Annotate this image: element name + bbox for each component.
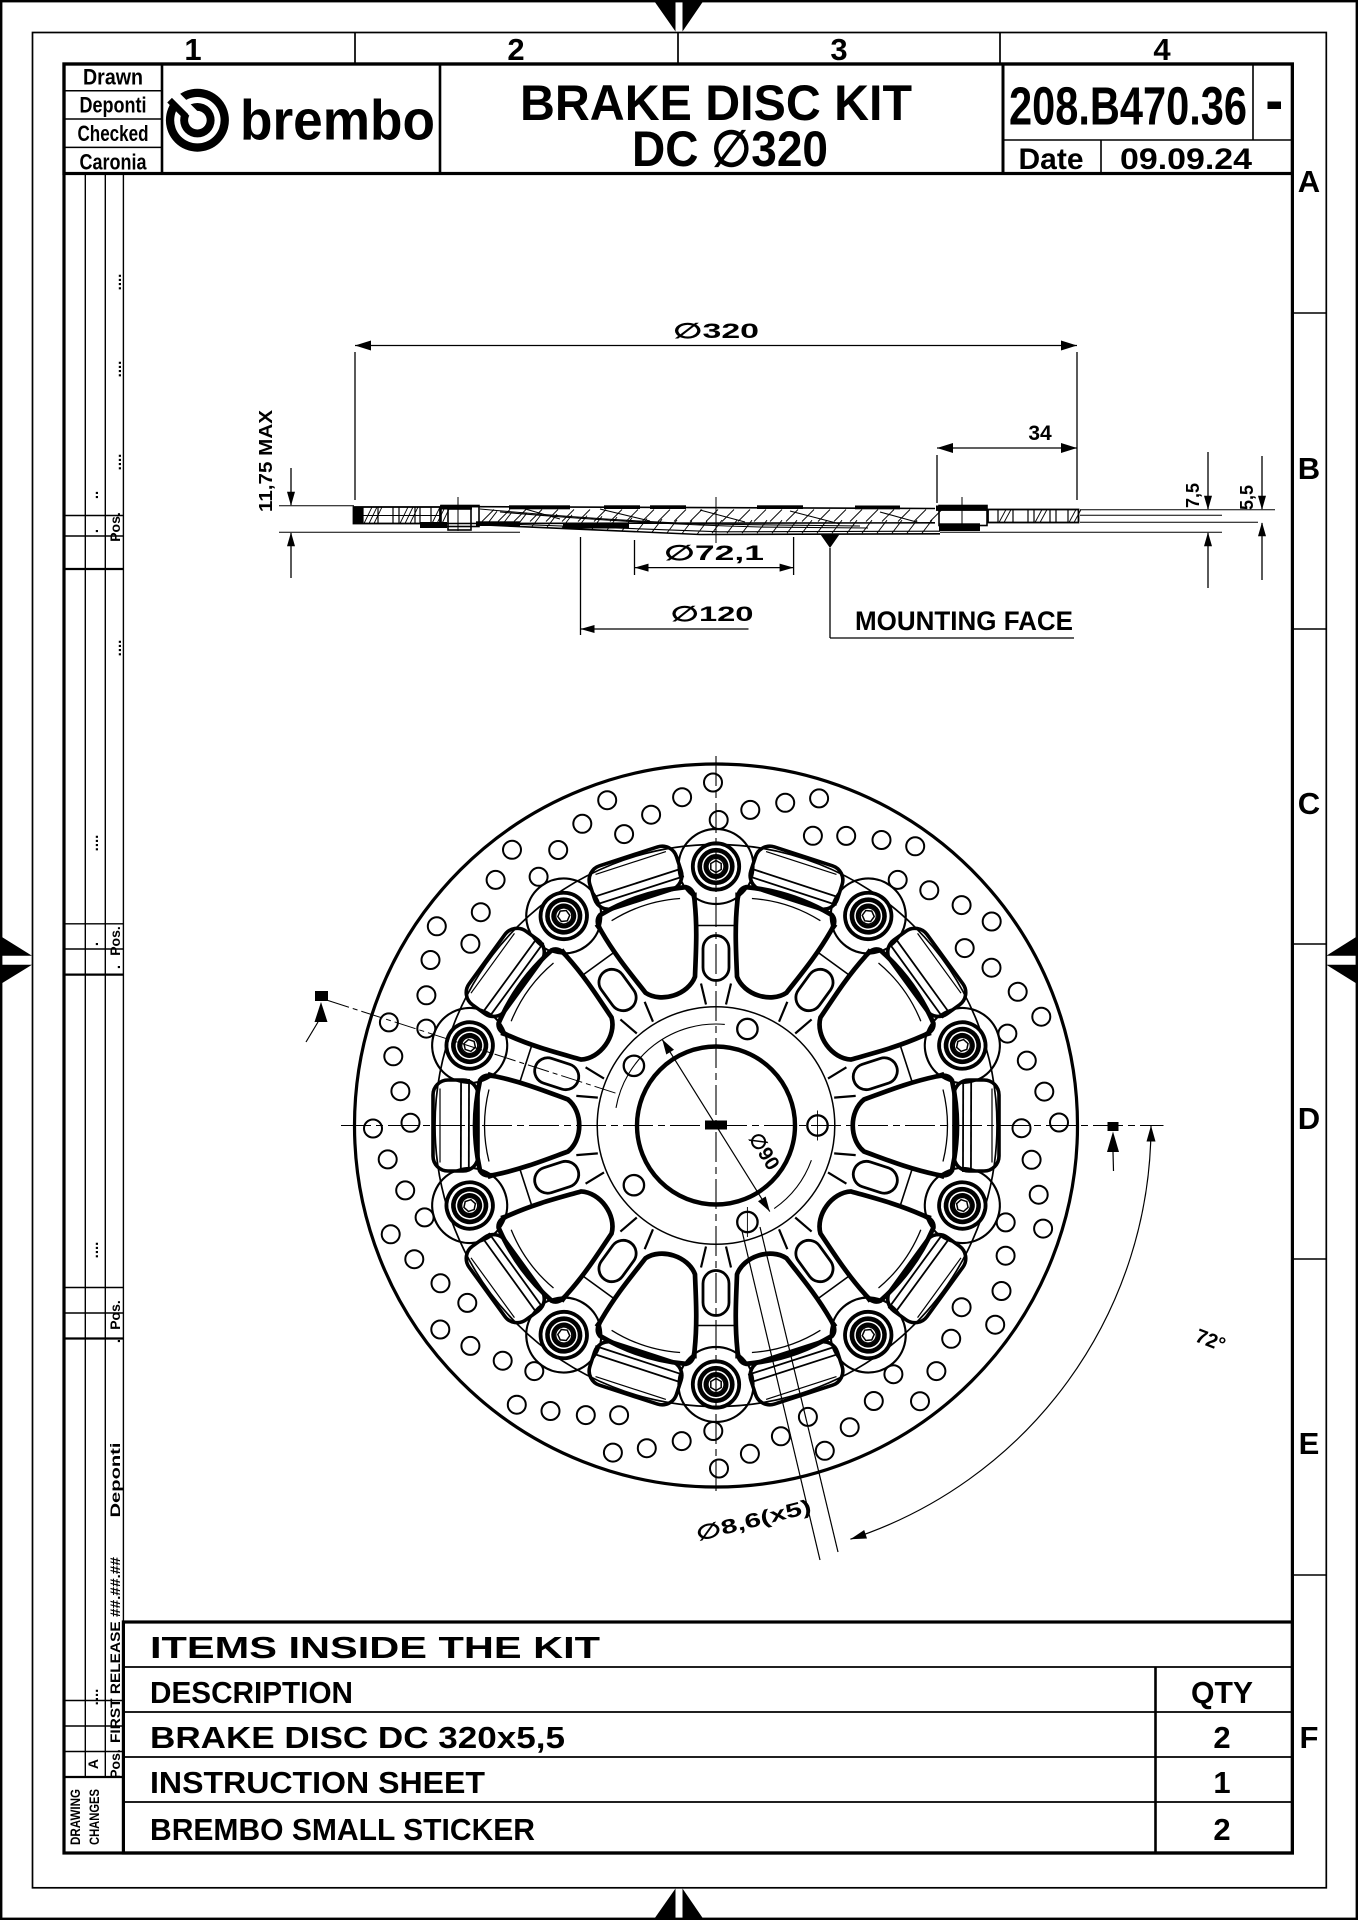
svg-text:2: 2 <box>1213 1812 1230 1847</box>
svg-text:09.09.24: 09.09.24 <box>1120 143 1252 176</box>
svg-text:A: A <box>1298 164 1320 199</box>
svg-text:72°: 72° <box>1192 1325 1228 1356</box>
svg-text:BRAKE DISC DC 320x5,5: BRAKE DISC DC 320x5,5 <box>150 1720 565 1755</box>
svg-text:....: .... <box>108 454 125 471</box>
svg-text:....: .... <box>108 274 125 291</box>
svg-text:CHANGES: CHANGES <box>87 1789 102 1845</box>
svg-text:B: B <box>1298 451 1320 486</box>
svg-text:E: E <box>1299 1426 1320 1461</box>
svg-text:∅120: ∅120 <box>671 603 754 626</box>
svg-text:Pos.: Pos. <box>107 926 123 956</box>
svg-text:11,75 MAX: 11,75 MAX <box>256 410 276 512</box>
svg-text:DRAWING: DRAWING <box>68 1789 83 1845</box>
svg-text:MOUNTING FACE: MOUNTING FACE <box>855 606 1073 636</box>
svg-text:.: . <box>85 529 102 533</box>
svg-text:Drawn: Drawn <box>83 65 143 90</box>
svg-text:QTY: QTY <box>1191 1675 1253 1710</box>
svg-text:∅8,6(x5): ∅8,6(x5) <box>694 1496 814 1546</box>
svg-text:Date: Date <box>1019 143 1084 176</box>
svg-text:2: 2 <box>1213 1720 1230 1755</box>
svg-text:Pos.: Pos. <box>107 512 123 542</box>
svg-text:34: 34 <box>1028 422 1052 445</box>
svg-text:∅72,1: ∅72,1 <box>664 542 765 565</box>
svg-text:DC ∅320: DC ∅320 <box>632 121 828 177</box>
svg-text:5,5: 5,5 <box>1237 485 1257 510</box>
svg-text:D: D <box>1298 1101 1320 1136</box>
svg-text:4: 4 <box>1153 32 1171 67</box>
svg-text:ITEMS INSIDE THE KIT: ITEMS INSIDE THE KIT <box>150 1630 600 1665</box>
svg-text:....: .... <box>85 1689 102 1706</box>
svg-text:2: 2 <box>507 32 524 67</box>
svg-text:Deponti: Deponti <box>107 1443 123 1518</box>
svg-text:C: C <box>1298 786 1320 821</box>
svg-text:∅320: ∅320 <box>673 320 759 343</box>
svg-text:....: .... <box>85 835 102 852</box>
svg-text:7,5: 7,5 <box>1183 483 1203 508</box>
svg-text:..: .. <box>85 491 102 499</box>
svg-text:FIRST RELEASE ##.##.##: FIRST RELEASE ##.##.## <box>107 1557 123 1743</box>
svg-text:.: . <box>107 1339 124 1343</box>
svg-text:....: .... <box>85 1242 102 1259</box>
svg-text:DESCRIPTION: DESCRIPTION <box>150 1675 353 1710</box>
svg-text:1: 1 <box>1213 1765 1230 1800</box>
svg-text:.: . <box>85 942 102 946</box>
svg-text:208.B470.36: 208.B470.36 <box>1009 77 1247 137</box>
svg-text:Pos.: Pos. <box>107 1749 123 1779</box>
svg-text:Checked: Checked <box>78 121 149 146</box>
svg-text:Caronia: Caronia <box>80 150 148 175</box>
svg-text:brembo: brembo <box>240 89 435 153</box>
svg-text:....: .... <box>108 361 125 378</box>
svg-text:....: .... <box>108 640 125 657</box>
svg-text:F: F <box>1300 1720 1319 1755</box>
svg-text:A: A <box>85 1759 101 1769</box>
svg-text:∅90: ∅90 <box>744 1129 784 1174</box>
svg-text:3: 3 <box>830 32 847 67</box>
svg-text:BREMBO SMALL STICKER: BREMBO SMALL STICKER <box>150 1812 535 1847</box>
svg-text:.: . <box>107 965 124 969</box>
svg-text:INSTRUCTION SHEET: INSTRUCTION SHEET <box>150 1765 485 1800</box>
svg-text:1: 1 <box>184 32 201 67</box>
svg-text:Pos.: Pos. <box>107 1300 123 1330</box>
svg-text:Deponti: Deponti <box>80 93 147 118</box>
